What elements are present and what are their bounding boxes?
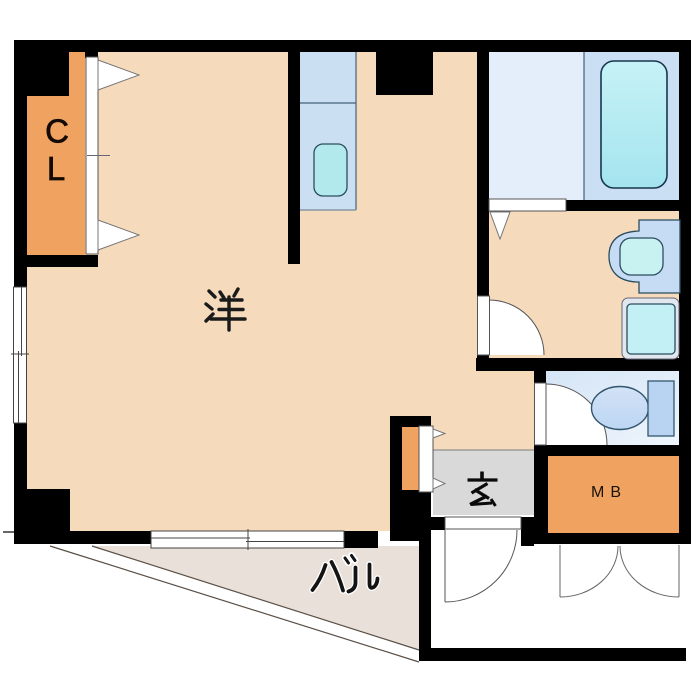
svg-text:C: C: [45, 113, 69, 150]
svg-text:MB: MB: [591, 484, 627, 501]
svg-text:L: L: [47, 150, 65, 187]
